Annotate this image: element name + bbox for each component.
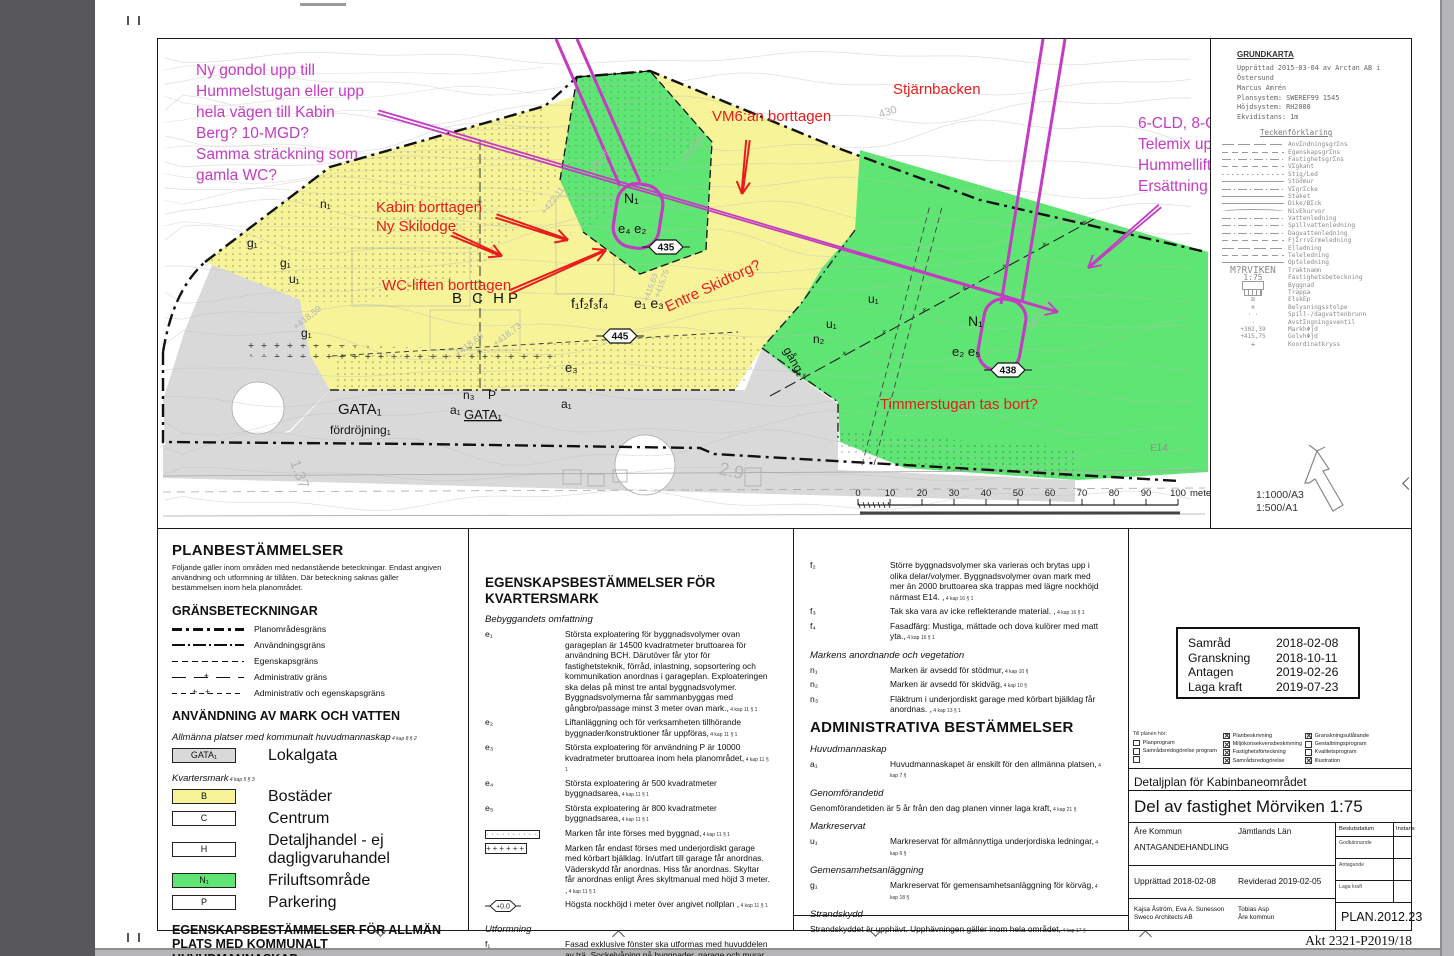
grundkarta-line: Ekvidistans: 1m [1237,113,1407,123]
boundary-legend-row: Administrativ och egenskapsgräns [172,688,450,698]
zone-label: n₂ [813,332,825,346]
boundary-legend-row: Administrativ gräns [172,672,450,682]
provision-term: e₄ [485,778,565,799]
zone-legend-row: BBostäder [172,788,450,806]
zone-label: Parkering [268,894,336,912]
tillhor-label: Gestaltningsprogram [1315,741,1367,747]
zone-label: u₁ [289,272,300,286]
legend-label: Optoledning [1288,259,1329,266]
checked-checkbox [1305,733,1312,740]
legend-row: +Koordinatkryss [1218,341,1408,348]
provision-text: Största exploatering för byggnadsvolymer… [565,629,771,713]
tillhor-item: Samrådsredogörelse [1223,757,1303,765]
provision-text: Fasad exklusive fönster ska utformas med… [565,939,771,956]
status-label: Granskning [1188,651,1276,666]
zone-code-box: N₁ [172,873,236,888]
legend-label: Belysningsstolpe [1288,304,1348,311]
zone-code-box: GATA₁ [172,748,236,763]
legend-symbol [1218,248,1288,249]
grundkarta-line: Plansystem: SWEREF99 1545 [1237,94,1407,104]
subsection-heading: Genomförandetid [810,788,1104,799]
scale-tick-label: 100 [1170,488,1186,499]
legend-label: Spill-/dagvattenbrunn [1288,311,1366,318]
zone-legend-row: PParkering [172,894,450,912]
boundary-line-symbol [172,644,244,646]
elevation-label: 430 [877,104,898,121]
legend-row: VΣgrΣcke [1218,185,1408,192]
provision-text: Marken får inte förses med byggnad, 4 ka… [565,828,771,839]
status-date: 2019-02-26 [1276,665,1338,680]
provision-text: Fläktrum i underjordiskt garage med körb… [890,694,1104,715]
legend-label: Trappa [1288,289,1310,296]
provision-row: e₄Största exploatering är 500 kvadratmet… [485,778,771,799]
authors-municipality: Tobias Asp Åre kommun [1238,906,1274,922]
boundary-line-symbol [172,628,244,631]
scale-tick-label: 20 [917,488,928,499]
annotation-note: Stjärnbacken [893,81,981,98]
subsection-heading: Kvartersmark 4 kap 5 § 3 [172,773,450,784]
provision-text: Marken får endast förses med underjordis… [565,843,771,896]
annotation-note: Timmerstugan tas bort? [880,396,1038,413]
zone-label: N₁ [624,190,639,206]
provision-text: Markreservat för allmännyttiga underjord… [890,836,1104,857]
svg-text:×: × [1042,240,1047,249]
scale-tick-label: 90 [1141,488,1152,499]
scale-ratio-a1: 1:500/A1 [1256,502,1304,515]
zone-label: a₁ [450,403,461,417]
col-beslutsdatum: Beslutsdatum [1339,826,1374,832]
col-instans: Instans [1396,826,1415,832]
zone-label: a₁ [561,397,572,411]
status-label: Samråd [1188,636,1276,651]
scale-tick-label: 70 [1077,488,1088,499]
provision-row: +0.0Högsta nockhöjd i meter över angivet… [485,899,771,916]
boundary-label: Användningsgräns [254,640,325,650]
tillhor-item [1133,755,1217,763]
unchecked-checkbox [1133,748,1140,755]
provision-text: Största exploatering för användning P är… [565,742,771,774]
provision-text: Större byggnadsvolymer ska varieras och … [890,560,1104,602]
section-heading: ANVÄNDNING AV MARK OCH VATTEN [172,709,450,723]
legend-label: Koordinatkryss [1288,341,1340,348]
zone-label: e₄ e₂ [618,221,646,236]
status-date: 2019-07-23 [1276,680,1338,695]
boundary-legend-row: Egenskapsgräns [172,656,450,666]
legend-symbol: ⊗ [1218,304,1288,311]
zone-label: E14 [1150,443,1168,454]
legend-label: Vattenledning [1288,215,1336,222]
legend-row: ⊞ElskΕp [1218,296,1408,303]
status-date: 2018-10-11 [1276,651,1337,666]
annotation-note: 6-CLD, 8-CLD ellerTelemix upp tillHummel… [1138,115,1210,195]
legend-symbol [1218,289,1288,296]
upprattad-date: Upprättad 2018-02-08 [1134,876,1216,886]
legend-row: Dike/BΣck [1218,200,1408,207]
provision-row: e₅Största exploatering är 800 kvadratmet… [485,803,771,824]
subsection-heading: Markens anordnande och vegetation [810,650,1104,661]
zone-label: n₁ [320,197,331,211]
checked-checkbox [1223,749,1230,756]
zone-label: Bostäder [268,788,332,806]
annotation-note: WC-liften borttagen [382,277,511,294]
checked-checkbox [1305,757,1312,764]
section-title: PLANBESTÄMMELSER [172,542,450,559]
subsection-heading: Strandskydd [810,909,1104,920]
provision-row: n₂Marken är avsedd för skidväg, 4 kap 10… [810,679,1104,690]
legend-symbol [1218,189,1288,190]
page-edge-mark [300,3,346,6]
plan-map: +++ n₁g₁g₁u₁g₁B C HPf₁f₂f₃f₄e₁ e₃e₃n₃Pa₁… [158,39,1210,527]
plan-title: Del av fastighet Mörviken 1:75 [1134,797,1363,817]
provision-term: e₃ [485,742,565,774]
plan-number: PLAN.2012.23 [1341,910,1422,924]
legend-symbol: + [1218,340,1288,349]
map-scale-ratios: 1:1000/A3 1:500/A1 [1256,489,1304,515]
provision-term: f₄ [810,621,890,642]
zone-label: fördröjning₁ [330,423,391,437]
svg-text:×: × [842,349,847,358]
legend-symbol: +302,39 [1218,326,1288,333]
divider [1210,38,1211,528]
tillhor-item: Kvalitetsprogram [1305,748,1409,756]
provision-row: e₂Liftanläggning och för verksamheten ti… [485,717,771,738]
boundary-line-symbol [172,693,244,694]
provision-term: e₂ [485,717,565,738]
tillhor-label: Planprogram [1143,740,1175,746]
boundary-legend-row: Planområdesgräns [172,624,450,634]
checked-checkbox [1223,733,1230,740]
legend-row: VΣgkant [1218,163,1408,170]
provision-row: g₁Markreservat för gemensamhetsanläggnin… [810,880,1104,901]
boundary-label: Egenskapsgräns [254,656,318,666]
viewer-right-gutter[interactable] [1440,0,1454,956]
svg-text:×: × [1002,262,1007,271]
legend-label: FjΣrrvΣrmeledning [1288,237,1351,244]
tillhor-item: Gestaltningsprogram [1305,740,1409,748]
provision-term: a₁ [810,759,890,780]
legend-row: EgenskapsgrΣns [1218,148,1408,155]
svg-text:435: 435 [658,243,675,254]
svg-text:×: × [1082,218,1087,227]
boundary-label: Administrativ gräns [254,672,327,682]
grundkarta-line: Marcus Amrén [1237,84,1407,94]
zone-label: GATA₁ [464,407,502,422]
status-row: Antagen2019-02-26 [1188,665,1358,680]
provision-text: Strandskyddet är upphävt. Upphävningen g… [810,924,1104,935]
legend-label: FastighetsgrΣns [1288,156,1344,163]
zone-label: u₁ [826,317,837,331]
provision-text: Marken är avsedd för skidväg, 4 kap 10 § [890,679,1104,690]
provision-term: e₅ [485,803,565,824]
legend-row: +302,39MarkhΦjd [1218,326,1408,333]
decision-lagakraft: Laga kraft [1339,884,1362,890]
provision-row: f₁Fasad exklusive fönster ska utformas m… [485,939,771,956]
zone-code-box: C [172,811,236,826]
legend-symbol [1218,166,1288,167]
legend-label: EgenskapsgrΣns [1288,149,1340,156]
zone-legend-row: CCentrum [172,810,450,828]
legend-row: FjΣrrvΣrmeledning [1218,237,1408,244]
provision-term: f₂ [810,560,890,602]
provision-row: f₂Större byggnadsvolymer ska varieras oc… [810,560,1104,602]
provision-term: f₁ [485,939,565,956]
legend-row: ·AvstΣngningsventil [1218,318,1408,325]
zone-label: e₂ e₅ [952,344,980,359]
zone-label: P [488,388,496,402]
legend-symbol: · · [1218,311,1288,318]
panel-planbestammelser: PLANBESTÄMMELSERFöljande gäller inom omr… [157,530,468,931]
unchecked-checkbox [1305,741,1312,748]
subsection-heading: Allmänna platser med kommunalt huvudmann… [172,732,450,743]
legend-symbol [1218,262,1288,263]
legend-row: AnvΣndningsgrΣns [1218,141,1408,148]
legend-label: AvstΣngningsventil [1288,319,1355,326]
legend-row: ⊗Belysningsstolpe [1218,304,1408,311]
scale-tick-label: 60 [1045,488,1056,499]
handling-type: ANTAGANDEHANDLING [1134,842,1229,852]
tillhor-label: Kvalitetsprogram [1315,749,1357,755]
legend-symbol [1218,240,1288,241]
provision-term: n₁ [810,665,890,676]
legend-label: MarkhΦjd [1288,326,1318,333]
provision-text: Största exploatering är 500 kvadratmeter… [565,778,771,799]
svg-text:445: 445 [612,332,629,343]
legend-symbol [1218,181,1288,182]
tillhor-item: Illustration [1305,757,1409,765]
legend-symbol [1218,225,1288,226]
title-block: Till planen hör: PlanprogramSamrådsredog… [1128,728,1412,931]
cross-ground-symbol: ++++++ [485,843,527,854]
crop-mark [138,16,140,25]
legend-label: NivΕkurvor [1288,208,1325,215]
status-date: 2018-02-08 [1276,636,1338,651]
scale-ratio-a3: 1:1000/A3 [1256,489,1304,502]
zone-code-box: H [172,842,236,857]
legend-label: Teleledning [1288,252,1329,259]
zone-label: g₁ [280,256,291,270]
subsection-heading: Gemensamhetsanläggning [810,865,1104,876]
legend-row: Teleledning [1218,252,1408,259]
legend-symbol [1218,255,1288,256]
authors-consultant: Kajsa Åström, Eva A. Sunesson Sweco Arch… [1134,906,1224,922]
legend-title: Teckenförklaring [1260,128,1408,137]
status-label: Laga kraft [1188,680,1276,695]
section-heading: EGENSKAPSBESTÄMMELSER FÖR ALLMÄN PLATS M… [172,923,450,956]
legend-row: Trappa [1218,289,1408,296]
unchecked-checkbox [1133,756,1140,763]
status-row: Granskning2018-10-11 [1188,651,1358,666]
provision-text: Tak ska vara av icke reflekterande mater… [890,606,1104,617]
legend-symbol [1218,233,1288,234]
tillhor-item: Planprogram [1133,739,1217,747]
legend-label: Spillvattenledning [1288,222,1355,229]
legend-symbol [1218,159,1288,160]
legend-label: Elledning [1288,245,1322,252]
svg-text:+: + [477,347,482,357]
dotted-ground-symbol: ·········· [485,830,540,839]
grundkarta-title: GRUNDKARTA [1237,50,1407,59]
legend-label: ElskΕp [1288,296,1310,303]
zone-label: f₁f₂f₃f₄ [571,295,608,311]
scale-tick-label: 40 [981,488,992,499]
svg-text:438: 438 [1000,366,1017,377]
tillhor-label: Illustration [1315,758,1341,764]
legend-symbol [1218,209,1288,214]
zone-legend-row: N₁Friluftsområde [172,872,450,890]
county: Jämtlands Län [1238,827,1291,836]
crop-mark [138,933,140,942]
zoning-areas [163,71,1208,502]
legend-label: Dike/BΣck [1288,200,1322,207]
tillhor-item: Miljökonsekvensbeskrivning [1223,740,1303,748]
scale-tick-label: 80 [1109,488,1120,499]
legend-row: Spillvattenledning [1218,222,1408,229]
legend-label: VΣgkant [1288,163,1314,170]
legend-label: Staket [1288,193,1310,200]
provision-text: Högsta nockhöjd i meter över angivet nol… [565,899,771,916]
tillhor-label: Fastighetsförteckning [1233,749,1286,755]
provision-row: u₁Markreservat för allmännyttiga underjo… [810,836,1104,857]
boundary-line-symbol [172,677,244,678]
subsection-heading: Huvudmannaskap [810,744,1104,755]
reviderad-date: Reviderad 2019-02-05 [1238,876,1321,886]
nockhojd-symbol: +0.0 [485,899,521,914]
zone-legend-row: GATA₁Lokalgata [172,747,450,765]
legend-symbol [1218,152,1288,153]
scale-tick-label: 0 [855,488,860,499]
provision-text: Marken är avsedd för stödmur, 4 kap 10 § [890,665,1104,676]
crop-mark [127,16,129,25]
scale-tick-label: 10 [885,488,896,499]
viewer-left-gutter [0,0,95,956]
subsection-heading: Utformning [485,924,771,935]
provision-row: ++++++Marken får endast förses med under… [485,843,771,896]
legend-symbol [1218,174,1288,175]
legend-label: Traktnamn [1288,267,1322,274]
map-legend: Teckenförklaring AnvΣndningsgrΣnsEgenska… [1218,128,1408,348]
section-title: ADMINISTRATIVA BESTÄMMELSER [810,719,1104,736]
legend-row: · ·Spill-/dagvattenbrunn [1218,311,1408,318]
legend-symbol: · [1218,319,1288,326]
provision-row: f₄Fasadfärg: Mustiga, mättade och dova k… [810,621,1104,642]
legend-label: GolvhΦjd [1288,333,1318,340]
legend-row: Stig/Led [1218,171,1408,178]
checked-checkbox [1223,757,1230,764]
tillhor-label: Granskningsutlåtande [1315,733,1369,739]
legend-row: NivΕkurvor [1218,208,1408,215]
provision-term: ·········· [485,828,565,839]
legend-row: Staket [1218,193,1408,200]
legend-label: Stödmur [1288,178,1314,185]
legend-symbol [1218,196,1288,197]
provision-text: Markreservat för gemensamhetsanläggning … [890,880,1104,901]
status-row: Samråd2018-02-08 [1188,636,1358,651]
zone-label: g₁ [301,326,312,340]
provision-term: n₂ [810,679,890,690]
legend-label: AnvΣndningsgrΣns [1288,141,1348,148]
provision-row: e₃Största exploatering för användning P … [485,742,771,774]
zone-label: Detaljhandel - ej dagligvaruhandel [268,832,450,868]
provision-text: Huvudmannaskapet är enskilt för den allm… [890,759,1104,780]
crop-mark [127,933,129,942]
legend-label: Byggnad [1288,282,1314,289]
svg-text:+0.0: +0.0 [496,904,510,911]
provision-term: e₁ [485,629,565,713]
zone-label: e₃ [565,360,578,375]
zone-label: Centrum [268,810,329,828]
zone-label: N₁ [968,313,983,329]
tillhor-item: Fastighetsförteckning [1223,748,1303,756]
subsection-heading: Bebyggandets omfattning [485,614,771,625]
scale-unit: meter [1190,488,1210,499]
panel-administrativa: f₂Större byggnadsvolymer ska varieras oc… [793,528,1128,931]
legend-row: Dagvattenledning [1218,230,1408,237]
section-heading: EGENSKAPSBESTÄMMELSER FÖR KVARTERSMARK [485,575,771,606]
decision-godkannande: Godkännande [1339,840,1372,846]
provision-text: Genomförandetiden är 5 år från den dag p… [810,803,1104,814]
legend-symbol [1218,218,1288,219]
boundary-label: Administrativ och egenskapsgräns [254,688,385,698]
annotation-note: VM6:an borttagen [712,108,831,125]
legend-symbol [1218,144,1288,145]
svg-text:×: × [802,371,807,380]
zone-legend-row: HDetaljhandel - ej dagligvaruhandel [172,832,450,868]
legend-symbol [1218,203,1288,204]
scale-tick-label: 50 [1013,488,1024,499]
legend-label: VΣgrΣcke [1288,186,1318,193]
akt-number: Akt 2321-P2019/18 [1250,933,1412,949]
tillhor-label: Planbeskrivning [1233,733,1273,739]
tillhor-label: Samrådsredogörelse program [1143,748,1217,754]
fold-mark [1139,930,1152,943]
zone-label: n₃ [463,388,475,402]
tillhor-item: Granskningsutlåtande [1305,732,1409,740]
panel-egenskaper-kvartersmark: EGENSKAPSBESTÄMMELSER FÖR KVARTERSMARKBe… [468,528,793,931]
provision-term: f₃ [810,606,890,617]
unchecked-checkbox [1305,749,1312,756]
base-map-info: GRUNDKARTA Upprättad 2015-03-04 av Arcta… [1237,50,1407,123]
boundary-label: Planområdesgräns [254,624,326,634]
provision-row: n₁Marken är avsedd för stödmur, 4 kap 10… [810,665,1104,676]
legend-label: Dagvattenledning [1288,230,1348,237]
tillhor-checklist: Till planen hör: PlanprogramSamrådsredog… [1133,731,1409,767]
svg-text:×: × [882,327,887,336]
zone-label: Friluftsområde [268,872,370,890]
legend-label: Fastighetsbeteckning [1288,274,1363,281]
provision-term: n₃ [810,694,890,715]
viewer-stage: +++ n₁g₁g₁u₁g₁B C HPf₁f₂f₃f₄e₁ e₃e₃n₃Pa₁… [0,0,1454,956]
boundary-legend-row: Användningsgräns [172,640,450,650]
legend-row: Elledning [1218,244,1408,251]
zone-label: GATA₁ [338,401,382,418]
tillhor-item: Planbeskrivning [1223,732,1303,740]
tillhor-item: Samrådsredogörelse program [1133,747,1217,755]
svg-text:×: × [922,305,927,314]
legend-symbol: ⊞ [1218,296,1288,303]
provision-row: f₃Tak ska vara av icke reflekterande mat… [810,606,1104,617]
zone-label: g₁ [247,236,258,250]
north-arrow-icon [1295,443,1355,527]
status-row: Laga kraft2019-07-23 [1188,680,1358,695]
legend-row: FastighetsgrΣns [1218,156,1408,163]
section-intro: Följande gäller inom områden med nedanst… [172,563,450,593]
tillhor-label: Samrådsredogörelse [1233,758,1285,764]
municipality: Åre Kommun [1134,827,1182,836]
provision-term: u₁ [810,836,890,857]
plan-status-box: Samråd2018-02-08Granskning2018-10-11Anta… [1176,627,1360,699]
zone-label: Lokalgata [268,747,337,765]
provision-row: n₃Fläktrum i underjordiskt garage med kö… [810,694,1104,715]
